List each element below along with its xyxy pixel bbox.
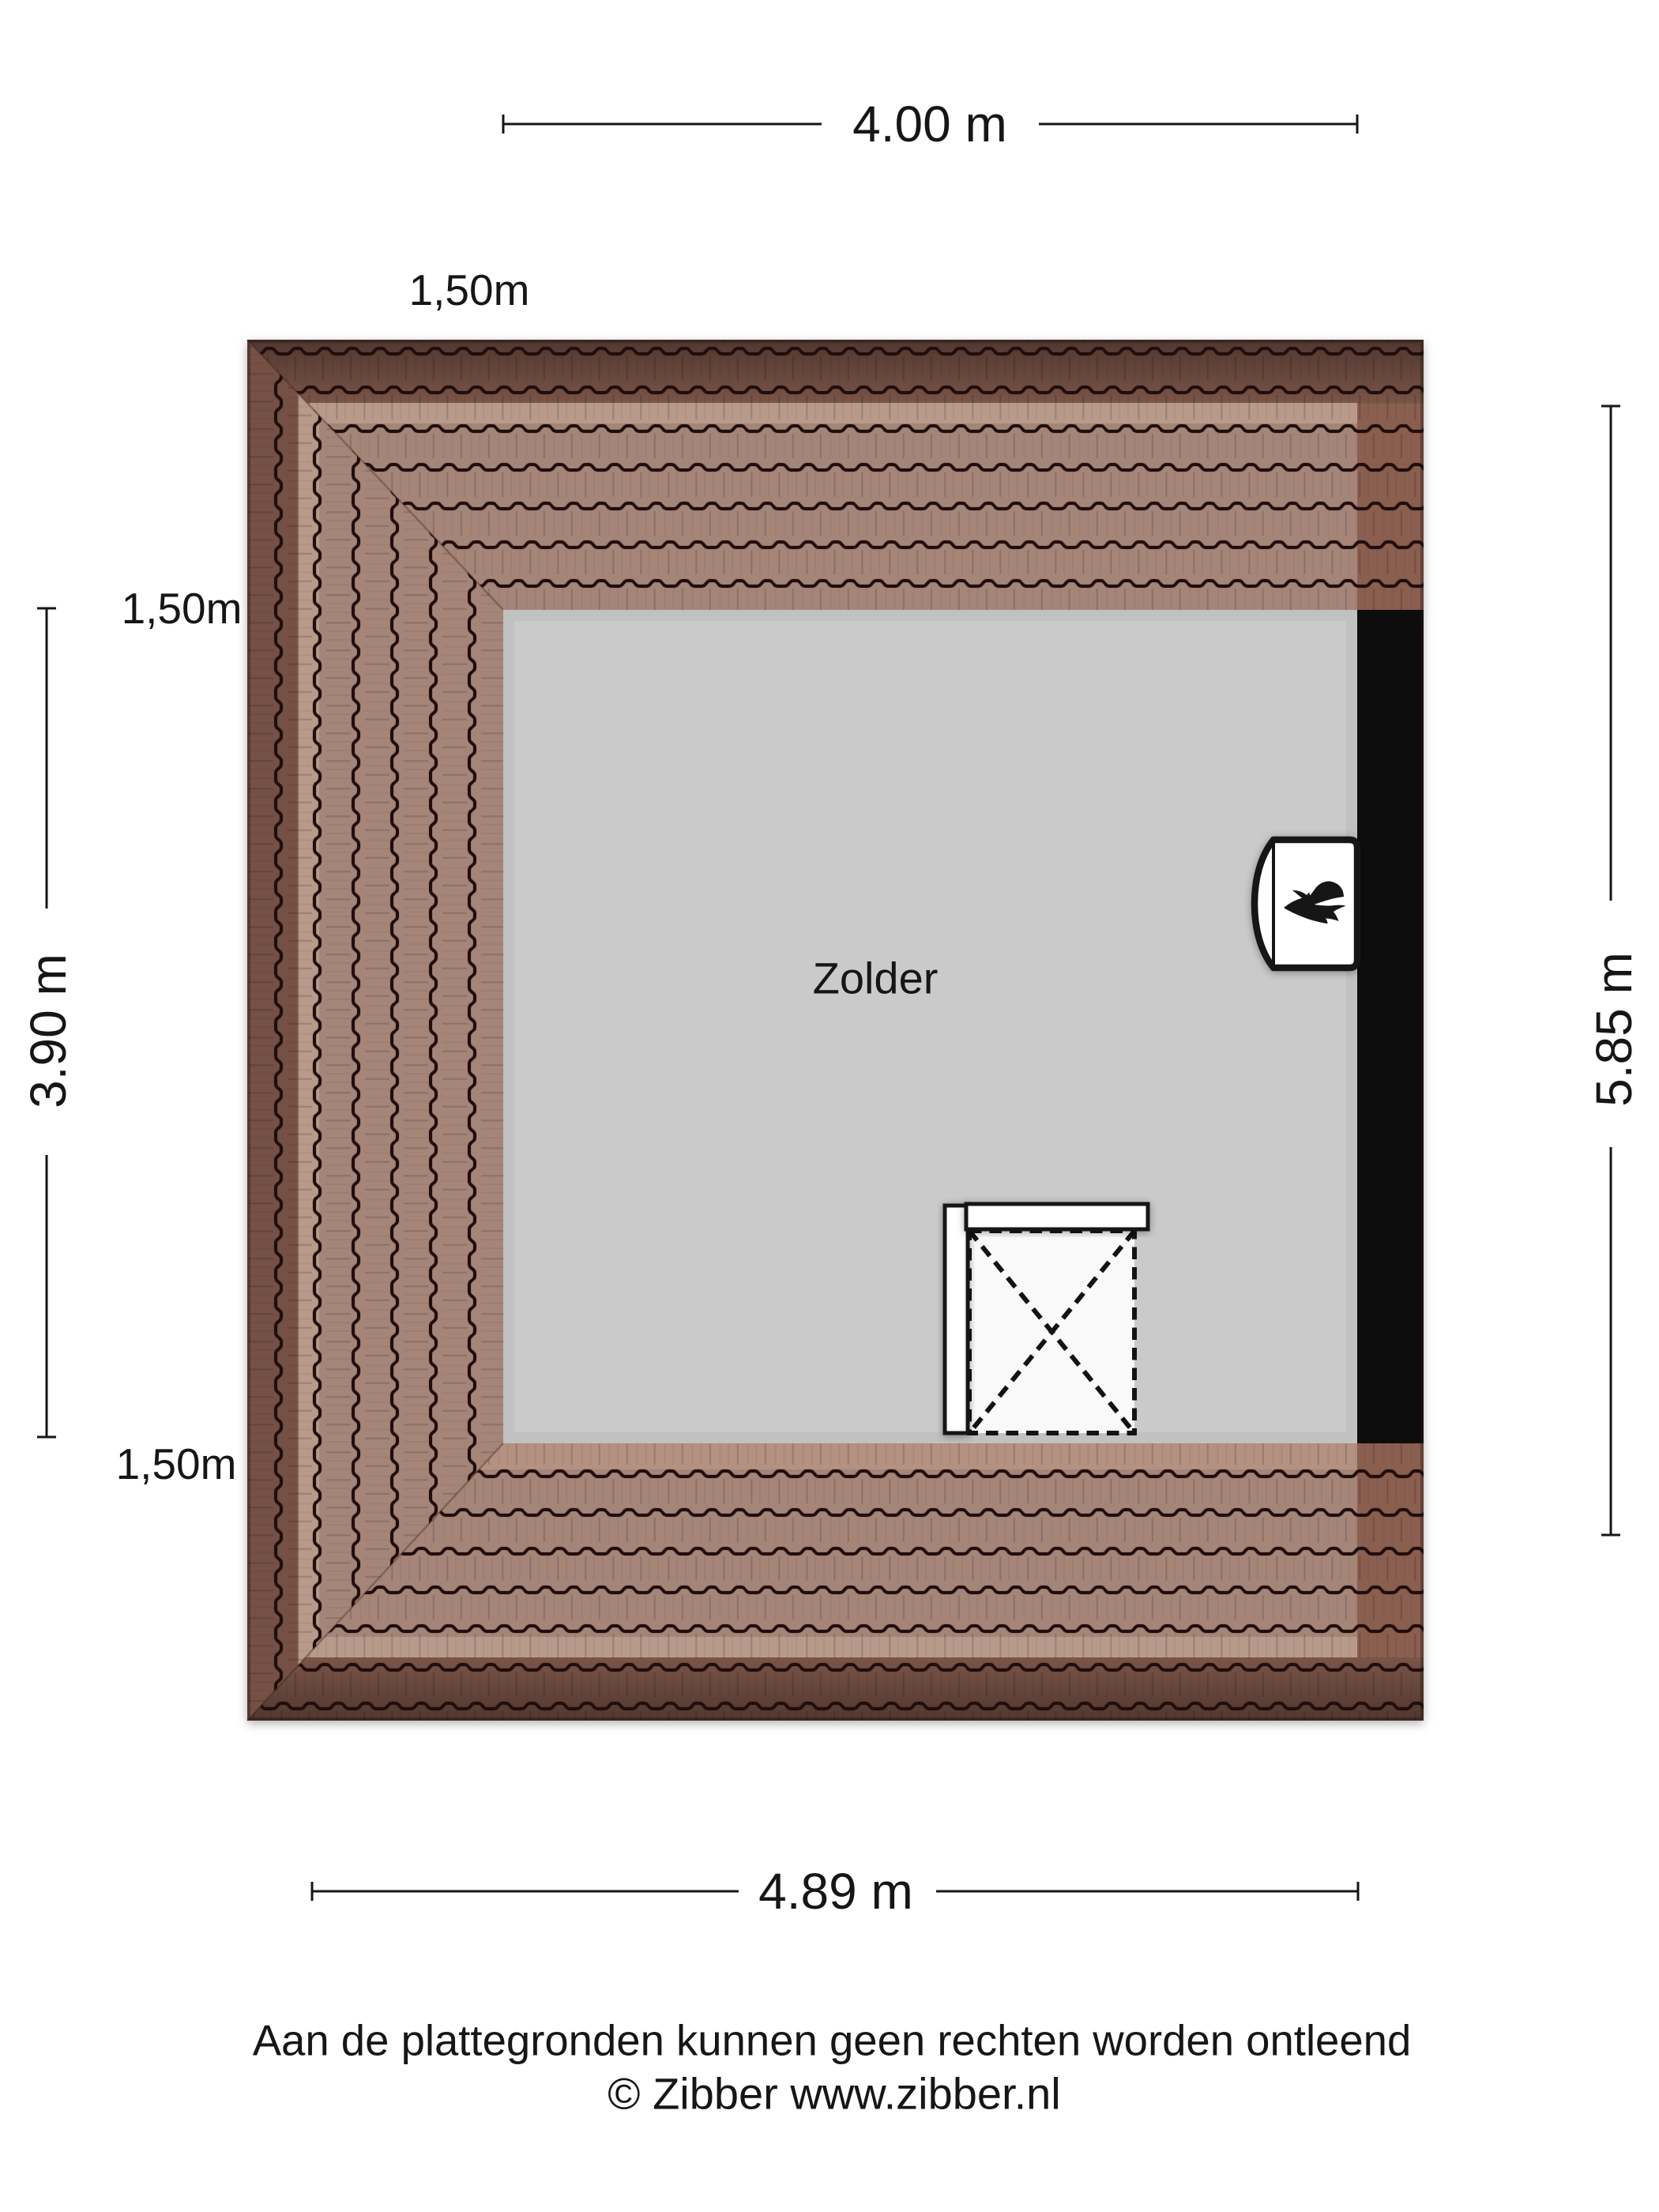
svg-text:4.89 m: 4.89 m (758, 1863, 913, 1920)
svg-text:Aan de plattegronden kunnen ge: Aan de plattegronden kunnen geen rechten… (253, 2017, 1412, 2065)
svg-text:© Zibber www.zibber.nl: © Zibber www.zibber.nl (608, 2069, 1060, 2119)
svg-text:1,50m: 1,50m (122, 584, 243, 633)
svg-text:4.00 m: 4.00 m (852, 96, 1007, 152)
svg-text:Zolder: Zolder (813, 954, 939, 1003)
svg-text:1,50m: 1,50m (116, 1439, 237, 1488)
svg-text:3.90 m: 3.90 m (20, 954, 77, 1108)
svg-text:5.85 m: 5.85 m (1586, 952, 1642, 1107)
svg-text:1,50m: 1,50m (409, 265, 530, 314)
